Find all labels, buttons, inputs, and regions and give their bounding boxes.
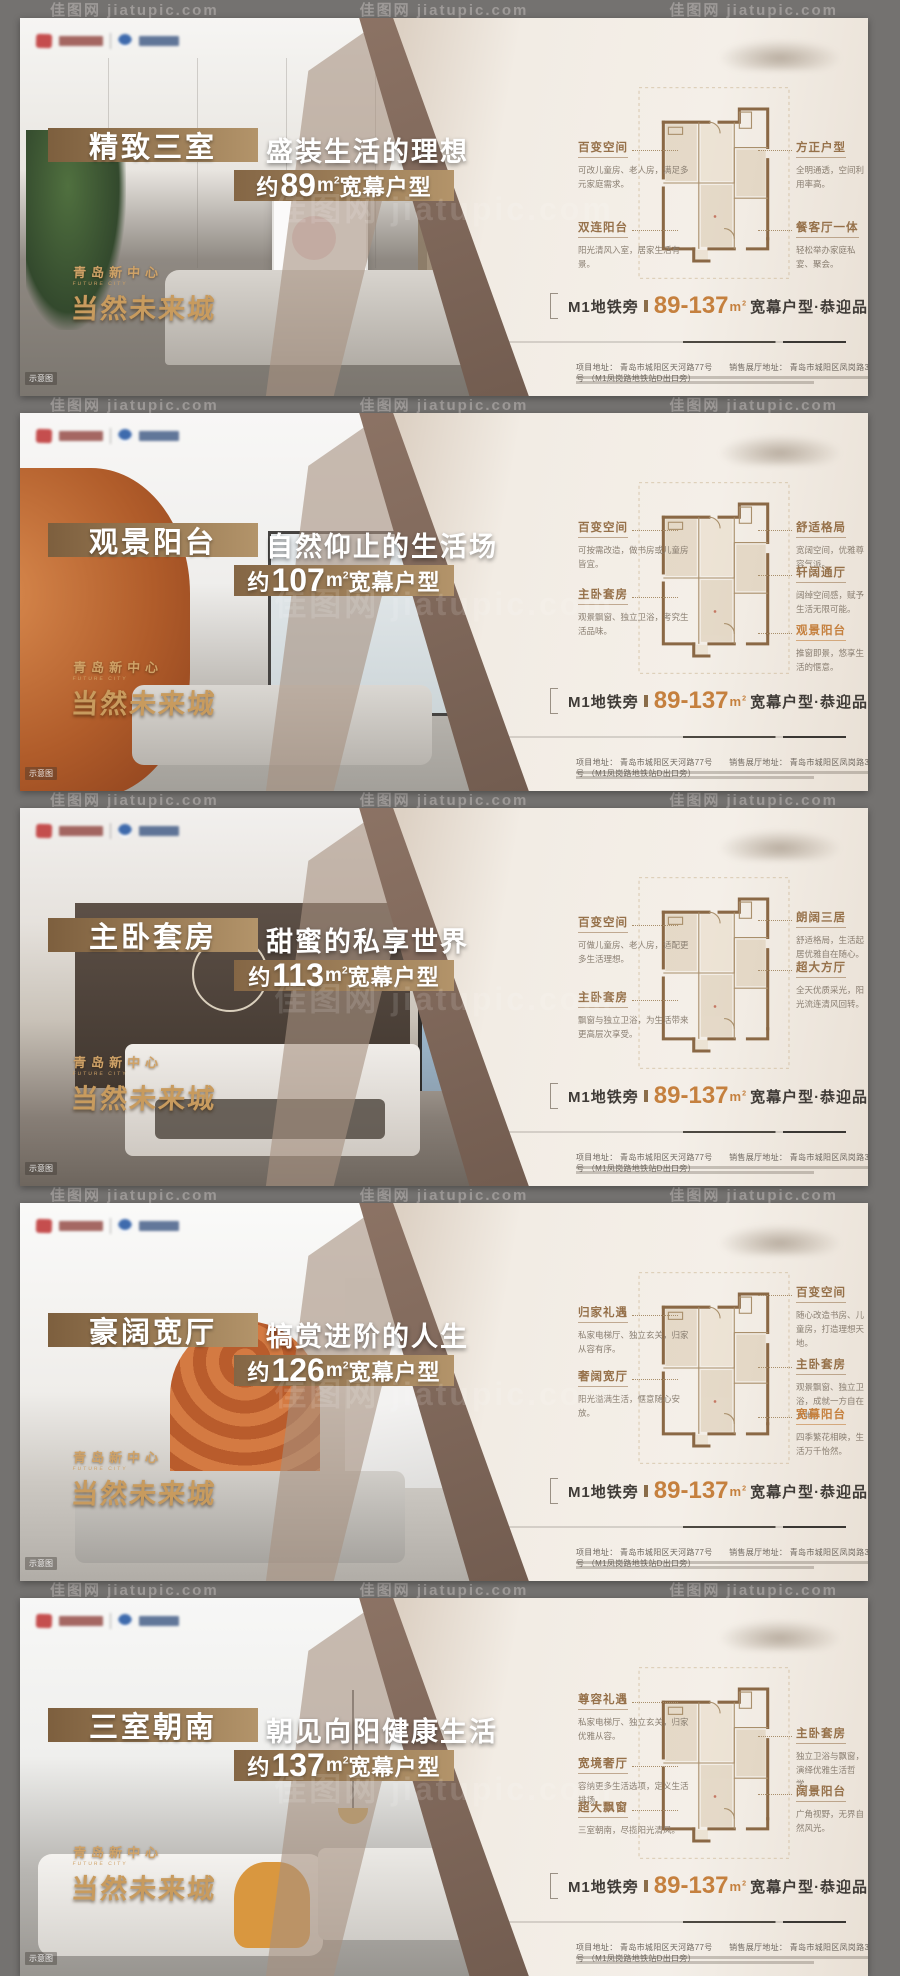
callout-desc: 私家电梯厅、独立玄关，归家从容有序。 [578, 1328, 690, 1356]
watermark-band: 佳图网 jiatupic.com佳图网 jiatupic.com佳图网 jiat… [20, 396, 868, 413]
bracket-left [550, 1873, 560, 1899]
watermark-text: 佳图网 jiatupic.com [360, 396, 529, 413]
plan-callout: 百变空间可按需改造，做书房或儿童房皆宜。 [578, 518, 690, 571]
developer-logo-red-icon [36, 1219, 52, 1234]
photo-element [350, 699, 422, 755]
panel-title: 三室朝南 [89, 1704, 217, 1746]
disclaimer-micro-line [576, 771, 868, 774]
plan-callout: 观景阳台推窗即景，悠享生活的惬意。 [796, 621, 868, 674]
tagline-suffix: 宽幕户型·恭迎品鉴 [750, 1086, 868, 1107]
callout-title: 百变空间 [578, 519, 628, 538]
brand-logos [36, 428, 179, 444]
callout-title: 主卧套房 [578, 586, 628, 605]
tagline-unit: m2 [730, 1089, 748, 1104]
plan-callout: 奢阔宽厅阳光溢满生活，惬意随心安放。 [578, 1367, 690, 1420]
divider-line [475, 1526, 846, 1528]
panel-title: 精致三室 [89, 124, 217, 166]
disclaimer-micro-line [576, 1561, 868, 1564]
callout-desc: 观景飘窗、独立卫浴，考究生活品味。 [578, 610, 690, 638]
poster-panel: 三室朝南 朝见向阳健康生活 约 137 m2 宽幕户型 青岛新中心 FUTURE… [20, 1598, 868, 1976]
callout-desc: 推窗即景，悠享生活的惬意。 [796, 646, 868, 674]
brand-logos [36, 823, 179, 839]
area-about: 约 [247, 1750, 270, 1782]
photo-element [20, 468, 190, 791]
panel-title: 豪阔宽厅 [89, 1309, 217, 1351]
callout-title: 方正户型 [796, 139, 846, 158]
disclaimer-micro-line [576, 1166, 868, 1169]
plan-callout: 百变空间可改儿童房、老人房，满足多元家庭需求。 [578, 138, 690, 191]
panel-subtitle: 盛装生活的理想 [266, 130, 469, 169]
callout-title: 主卧套房 [578, 989, 628, 1008]
tagline-area-range: 89-137 [654, 1082, 729, 1110]
project-name: 当然未来城 [70, 1867, 217, 1906]
project-calligraphy-mark: 青岛新中心 FUTURE CITY 当然未来城 [70, 1052, 218, 1116]
project-name: 当然未来城 [70, 1472, 217, 1511]
area-unit: m2 [317, 175, 340, 197]
callout-desc: 阳光溢满生活，惬意随心安放。 [578, 1392, 690, 1420]
panel-title: 观景阳台 [89, 519, 217, 561]
tagline-suffix: 宽幕户型·恭迎品鉴 [750, 296, 868, 317]
callout-title: 观景阳台 [796, 622, 846, 641]
project-calligraphy-mark: 青岛新中心 FUTURE CITY 当然未来城 [70, 657, 218, 721]
poster-panel: 精致三室 盛装生活的理想 约 89 m2 宽幕户型 青岛新中心 FUTURE C… [20, 18, 868, 396]
double-bar-separator [644, 1485, 648, 1497]
project-wordmark-blurred [720, 1225, 840, 1255]
area-unit: m2 [326, 1360, 349, 1382]
developer-logo-blue-icon [118, 429, 132, 443]
developer-logo-blue-icon [118, 824, 132, 838]
watermark-band: 佳图网 jiatupic.com佳图网 jiatupic.com佳图网 jiat… [20, 1581, 868, 1598]
area-gold-bar: 约 126 m2 宽幕户型 [234, 1355, 454, 1386]
headline-gold-bar: 三室朝南 [48, 1708, 258, 1742]
tagline: M1地铁旁 89-137 m2 宽幕户型·恭迎品鉴 [560, 292, 868, 320]
render-disclaimer-tag: 示意图 [25, 1162, 57, 1175]
watermark-text: 佳图网 jiatupic.com [50, 396, 219, 413]
developer-logo-blue-text [139, 1221, 179, 1231]
callout-title: 尊容礼遇 [578, 1691, 628, 1710]
area-suffix: 宽幕户型 [349, 1355, 441, 1387]
callout-title: 朗阔三居 [796, 909, 846, 928]
tagline-prefix: M1地铁旁 [568, 691, 639, 712]
disclaimer-micro-line [576, 376, 868, 379]
watermark-text: 佳图网 jiatupic.com [669, 0, 838, 18]
plan-callout: 归家礼遇私家电梯厅、独立玄关，归家从容有序。 [578, 1303, 690, 1356]
project-wordmark-blurred [720, 40, 840, 70]
area-gold-bar: 约 107 m2 宽幕户型 [234, 565, 454, 596]
watermark-text: 佳图网 jiatupic.com [50, 1581, 219, 1598]
developer-logo-red-text [59, 826, 103, 836]
callout-title: 轩阔通厅 [796, 564, 846, 583]
brand-logos [36, 1613, 179, 1629]
bracket-left [550, 1083, 560, 1109]
tagline-unit: m2 [730, 694, 748, 709]
area-about: 约 [247, 1355, 270, 1387]
logo-divider [110, 428, 111, 444]
watermark-band: 佳图网 jiatupic.com佳图网 jiatupic.com佳图网 jiat… [20, 1186, 868, 1203]
plan-callout: 主卧套房独立卫浴与飘窗，演绎优雅生活哲学。 [796, 1724, 868, 1791]
poster-panel: 主卧套房 甜蜜的私享世界 约 113 m2 宽幕户型 青岛新中心 FUTURE … [20, 808, 868, 1186]
plan-callout: 尊容礼遇私家电梯厅、独立玄关，归家优雅从容。 [578, 1690, 690, 1743]
render-disclaimer-tag: 示意图 [25, 1557, 57, 1570]
panel-subtitle: 犒赏进阶的人生 [266, 1315, 469, 1354]
tagline: M1地铁旁 89-137 m2 宽幕户型·恭迎品鉴 [560, 1082, 868, 1110]
callout-desc: 全明通透，空间利用率高。 [796, 163, 868, 191]
callout-desc: 阳光清风入室，居家生活有景。 [578, 243, 690, 271]
area-gold-bar: 约 137 m2 宽幕户型 [234, 1750, 454, 1781]
brand-logos [36, 1218, 179, 1234]
tagline-prefix: M1地铁旁 [568, 1876, 639, 1897]
callout-title: 百变空间 [578, 139, 628, 158]
callout-desc: 私家电梯厅、独立玄关，归家优雅从容。 [578, 1715, 690, 1743]
area-suffix: 宽幕户型 [349, 565, 441, 597]
location-line: 青岛新中心 [73, 657, 219, 676]
tagline: M1地铁旁 89-137 m2 宽幕户型·恭迎品鉴 [560, 1872, 868, 1900]
project-wordmark-blurred [720, 435, 840, 465]
disclaimer-micro-line [576, 1961, 814, 1964]
callout-desc: 三室朝南，尽揽阳光清风。 [578, 1823, 690, 1837]
area-value: 137 [271, 1747, 324, 1784]
developer-logo-blue-text [139, 826, 179, 836]
callout-desc: 随心改造书房、儿童房，打造理想天地。 [796, 1308, 868, 1350]
project-name: 当然未来城 [70, 287, 217, 326]
developer-logo-blue-text [139, 1616, 179, 1626]
tagline: M1地铁旁 89-137 m2 宽幕户型·恭迎品鉴 [560, 687, 868, 715]
area-about: 约 [247, 565, 270, 597]
logo-divider [110, 1613, 111, 1629]
developer-logo-red-text [59, 1221, 103, 1231]
location-line: 青岛新中心 [73, 1842, 219, 1861]
area-unit: m2 [325, 965, 348, 987]
double-bar-separator [644, 300, 648, 312]
divider-line [475, 341, 846, 343]
panel-subtitle: 甜蜜的私享世界 [266, 920, 469, 959]
callout-title: 奢阔宽厅 [578, 1368, 628, 1387]
developer-logo-blue-text [139, 36, 179, 46]
area-suffix: 宽幕户型 [340, 170, 432, 202]
plan-callout: 宽幕阳台四季繁花相映，生活万千怡然。 [796, 1405, 868, 1458]
callout-title: 主卧套房 [796, 1356, 846, 1375]
callout-title: 餐客厅一体 [796, 219, 859, 238]
callout-desc: 全天优质采光，阳光流连清风回转。 [796, 983, 868, 1011]
callout-title: 舒适格局 [796, 519, 846, 538]
tagline-suffix: 宽幕户型·恭迎品鉴 [750, 1481, 868, 1502]
callout-title: 阔景阳台 [796, 1783, 846, 1802]
callout-desc: 四季繁花相映，生活万千怡然。 [796, 1430, 868, 1458]
headline-gold-bar: 豪阔宽厅 [48, 1313, 258, 1347]
callout-desc: 飘窗与独立卫浴，为生活带来更高层次享受。 [578, 1013, 690, 1041]
area-suffix: 宽幕户型 [348, 960, 440, 992]
tagline-area-range: 89-137 [654, 1872, 729, 1900]
disclaimer-micro-line [576, 1171, 814, 1174]
logo-divider [110, 1218, 111, 1234]
developer-logo-red-icon [36, 824, 52, 839]
watermark-text: 佳图网 jiatupic.com [669, 396, 838, 413]
plan-callout: 阔景阳台广角视野，无界自然风光。 [796, 1782, 868, 1835]
panel-subtitle: 朝见向阳健康生活 [266, 1710, 498, 1749]
headline-gold-bar: 主卧套房 [48, 918, 258, 952]
area-gold-bar: 约 89 m2 宽幕户型 [234, 170, 454, 201]
bracket-left [550, 688, 560, 714]
panel-title: 主卧套房 [89, 914, 217, 956]
disclaimer-micro-line [576, 776, 814, 779]
tagline-suffix: 宽幕户型·恭迎品鉴 [750, 1876, 868, 1897]
plan-callout: 方正户型全明通透，空间利用率高。 [796, 138, 868, 191]
watermark-text: 佳图网 jiatupic.com [669, 791, 838, 808]
plan-callout: 朗阔三居舒适格局，生活起居优雅自在随心。 [796, 908, 868, 961]
project-name: 当然未来城 [70, 1077, 217, 1116]
tagline-unit: m2 [730, 299, 748, 314]
logo-divider [110, 33, 111, 49]
disclaimer-micro-line [576, 1956, 868, 1959]
callout-desc: 阔绰空间感，赋予生活无限可能。 [796, 588, 868, 616]
poster-board: 佳图网 jiatupic.com佳图网 jiatupic.com佳图网 jiat… [0, 0, 900, 1976]
watermark-text: 佳图网 jiatupic.com [50, 1186, 219, 1203]
watermark-text: 佳图网 jiatupic.com [669, 1186, 838, 1203]
project-wordmark-blurred [720, 1620, 840, 1650]
tagline-area-range: 89-137 [654, 687, 729, 715]
area-value: 126 [271, 1352, 324, 1389]
developer-logo-blue-text [139, 431, 179, 441]
tagline-prefix: M1地铁旁 [568, 296, 639, 317]
developer-logo-blue-icon [118, 1219, 132, 1233]
tagline-prefix: M1地铁旁 [568, 1481, 639, 1502]
plan-callout: 主卧套房飘窗与独立卫浴，为生活带来更高层次享受。 [578, 988, 690, 1041]
location-line: 青岛新中心 [73, 1447, 219, 1466]
area-value: 89 [280, 167, 316, 204]
double-bar-separator [644, 695, 648, 707]
plan-callout: 百变空间随心改造书房、儿童房，打造理想天地。 [796, 1283, 868, 1350]
callout-title: 宽境奢厅 [578, 1755, 628, 1774]
render-disclaimer-tag: 示意图 [25, 767, 57, 780]
area-unit: m2 [326, 570, 349, 592]
brand-logos [36, 33, 179, 49]
area-suffix: 宽幕户型 [349, 1750, 441, 1782]
divider-line [475, 1921, 846, 1923]
panel-subtitle: 自然仰止的生活场 [266, 525, 498, 564]
watermark-text: 佳图网 jiatupic.com [360, 0, 529, 18]
project-calligraphy-mark: 青岛新中心 FUTURE CITY 当然未来城 [70, 262, 218, 326]
area-unit: m2 [326, 1755, 349, 1777]
callout-desc: 轻松举办家庭私宴、聚会。 [796, 243, 868, 271]
floor-plan [638, 874, 790, 1072]
area-value: 113 [272, 957, 324, 994]
plan-callout: 轩阔通厅阔绰空间感，赋予生活无限可能。 [796, 563, 868, 616]
render-disclaimer-tag: 示意图 [25, 1952, 57, 1965]
area-value: 107 [271, 562, 324, 599]
tagline-unit: m2 [730, 1484, 748, 1499]
watermark-text: 佳图网 jiatupic.com [50, 0, 219, 18]
area-gold-bar: 约 113 m2 宽幕户型 [234, 960, 454, 991]
project-wordmark-blurred [720, 830, 840, 860]
location-line: 青岛新中心 [73, 262, 219, 281]
area-about: 约 [256, 170, 279, 202]
bracket-left [550, 293, 560, 319]
project-name: 当然未来城 [70, 682, 217, 721]
callout-title: 主卧套房 [796, 1725, 846, 1744]
tagline-unit: m2 [730, 1879, 748, 1894]
callout-title: 归家礼遇 [578, 1304, 628, 1323]
developer-logo-red-text [59, 1616, 103, 1626]
divider-line [475, 736, 846, 738]
developer-logo-red-text [59, 431, 103, 441]
project-calligraphy-mark: 青岛新中心 FUTURE CITY 当然未来城 [70, 1447, 218, 1511]
headline-gold-bar: 观景阳台 [48, 523, 258, 557]
watermark-text: 佳图网 jiatupic.com [360, 1581, 529, 1598]
poster-panel: 观景阳台 自然仰止的生活场 约 107 m2 宽幕户型 青岛新中心 FUTURE… [20, 413, 868, 791]
render-disclaimer-tag: 示意图 [25, 372, 57, 385]
callout-title: 双连阳台 [578, 219, 628, 238]
tagline-area-range: 89-137 [654, 292, 729, 320]
callout-desc: 广角视野，无界自然风光。 [796, 1807, 868, 1835]
poster-panel: 豪阔宽厅 犒赏进阶的人生 约 126 m2 宽幕户型 青岛新中心 FUTURE … [20, 1203, 868, 1581]
developer-logo-red-text [59, 36, 103, 46]
plan-callout: 超大飘窗三室朝南，尽揽阳光清风。 [578, 1798, 690, 1837]
area-about: 约 [248, 960, 271, 992]
plan-callout: 超大方厅全天优质采光，阳光流连清风回转。 [796, 958, 868, 1011]
developer-logo-red-icon [36, 34, 52, 49]
bracket-left [550, 1478, 560, 1504]
plan-callout: 百变空间可做儿童房、老人房，适配更多生活理想。 [578, 913, 690, 966]
callout-desc: 舒适格局，生活起居优雅自在随心。 [796, 933, 868, 961]
headline-gold-bar: 精致三室 [48, 128, 258, 162]
callout-desc: 可做儿童房、老人房，适配更多生活理想。 [578, 938, 690, 966]
disclaimer-micro-line [576, 381, 814, 384]
disclaimer-micro-line [576, 1566, 814, 1569]
developer-logo-blue-icon [118, 34, 132, 48]
tagline-suffix: 宽幕户型·恭迎品鉴 [750, 691, 868, 712]
floor-plan-drawing [638, 874, 790, 1072]
tagline: M1地铁旁 89-137 m2 宽幕户型·恭迎品鉴 [560, 1477, 868, 1505]
callout-title: 百变空间 [796, 1284, 846, 1303]
floor-plan [638, 479, 790, 677]
double-bar-separator [644, 1090, 648, 1102]
watermark-text: 佳图网 jiatupic.com [50, 791, 219, 808]
project-calligraphy-mark: 青岛新中心 FUTURE CITY 当然未来城 [70, 1842, 218, 1906]
double-bar-separator [644, 1880, 648, 1892]
divider-line [475, 1131, 846, 1133]
logo-divider [110, 823, 111, 839]
callout-title: 宽幕阳台 [796, 1406, 846, 1425]
developer-logo-blue-icon [118, 1614, 132, 1628]
callout-title: 百变空间 [578, 914, 628, 933]
plan-callout: 双连阳台阳光清风入室，居家生活有景。 [578, 218, 690, 271]
callout-title: 超大方厅 [796, 959, 846, 978]
developer-logo-red-icon [36, 1614, 52, 1629]
watermark-band: 佳图网 jiatupic.com佳图网 jiatupic.com佳图网 jiat… [20, 0, 868, 18]
watermark-band: 佳图网 jiatupic.com佳图网 jiatupic.com佳图网 jiat… [20, 791, 868, 808]
watermark-text: 佳图网 jiatupic.com [360, 791, 529, 808]
plan-callout: 主卧套房观景飘窗、独立卫浴，考究生活品味。 [578, 585, 690, 638]
developer-logo-red-icon [36, 429, 52, 444]
callout-desc: 可改儿童房、老人房，满足多元家庭需求。 [578, 163, 690, 191]
tagline-area-range: 89-137 [654, 1477, 729, 1505]
callout-desc: 可按需改造，做书房或儿童房皆宜。 [578, 543, 690, 571]
watermark-text: 佳图网 jiatupic.com [360, 1186, 529, 1203]
watermark-text: 佳图网 jiatupic.com [669, 1581, 838, 1598]
plan-callout: 餐客厅一体轻松举办家庭私宴、聚会。 [796, 218, 868, 271]
location-line: 青岛新中心 [73, 1052, 219, 1071]
callout-title: 超大飘窗 [578, 1799, 628, 1818]
floor-plan-drawing [638, 479, 790, 677]
tagline-prefix: M1地铁旁 [568, 1086, 639, 1107]
